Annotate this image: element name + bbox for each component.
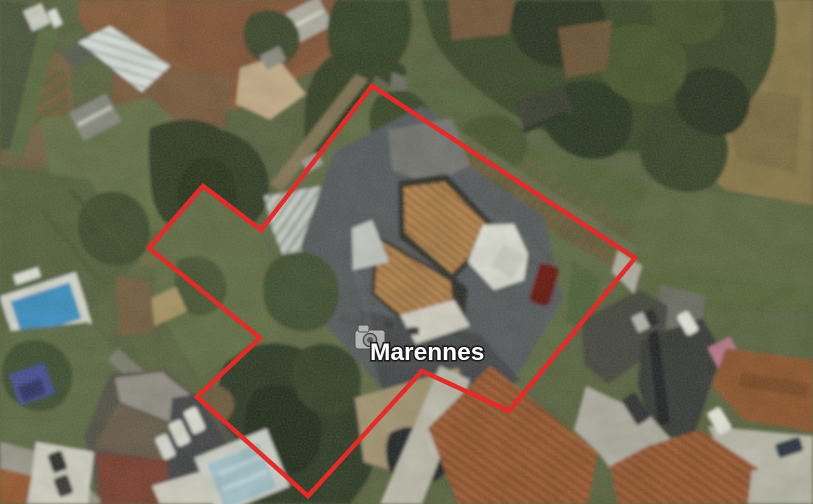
svg-text:Marennes: Marennes xyxy=(370,339,484,366)
